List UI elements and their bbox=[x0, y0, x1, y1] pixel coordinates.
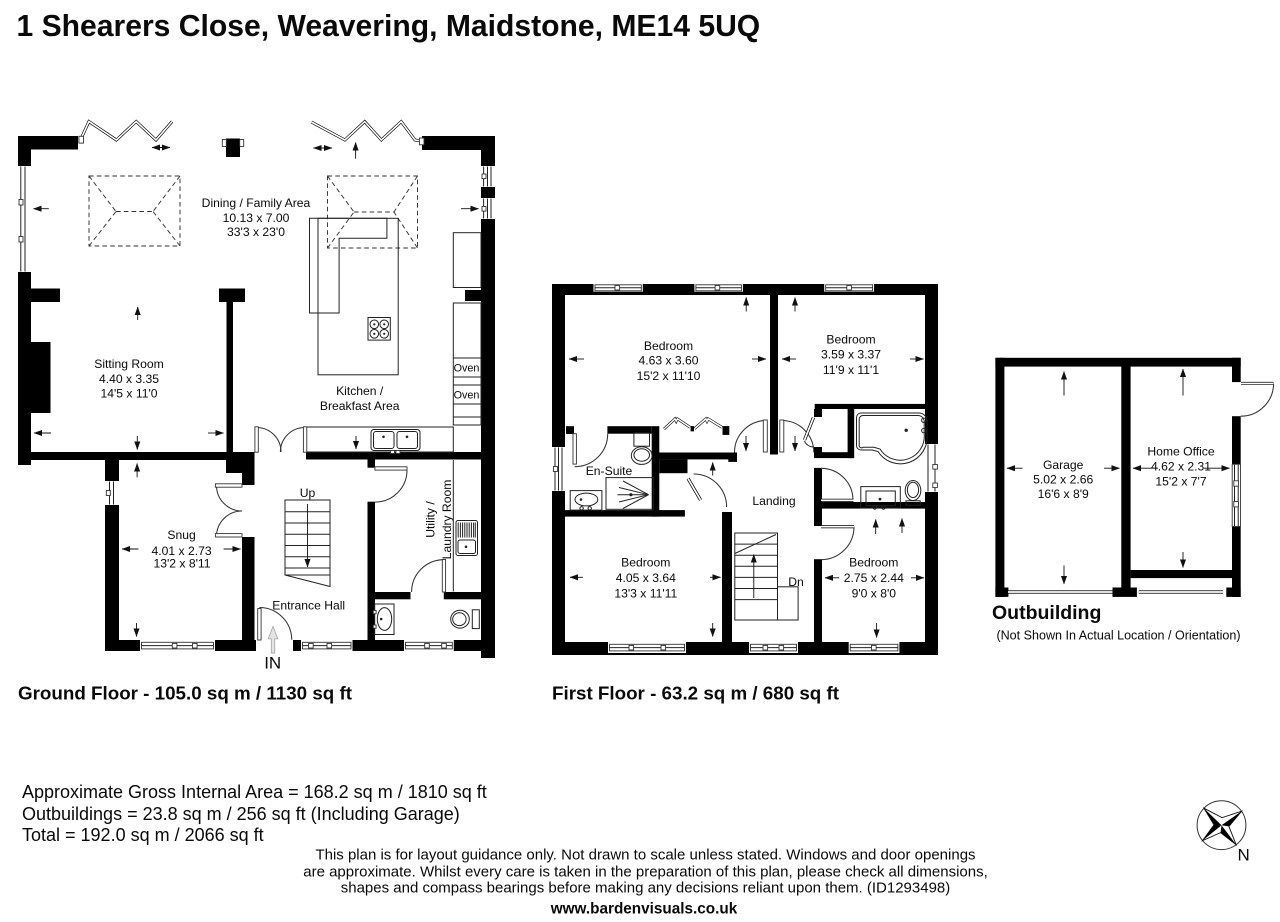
svg-text:www.bardenvisuals.co.uk: www.bardenvisuals.co.uk bbox=[550, 901, 738, 918]
svg-text:1 Shearers Close, Weavering, M: 1 Shearers Close, Weavering, Maidstone, … bbox=[17, 10, 761, 43]
svg-text:Approximate Gross Internal Are: Approximate Gross Internal Area = 168.2 … bbox=[22, 782, 487, 802]
svg-text:14'5 x 11'0: 14'5 x 11'0 bbox=[100, 387, 157, 401]
svg-text:4.63 x 3.60: 4.63 x 3.60 bbox=[638, 354, 698, 368]
svg-text:Ground Floor - 105.0 sq m / 11: Ground Floor - 105.0 sq m / 1130 sq ft bbox=[18, 683, 353, 704]
svg-text:Total = 192.0 sq m / 2066 sq f: Total = 192.0 sq m / 2066 sq ft bbox=[22, 825, 264, 845]
svg-text:4.62 x 2.31: 4.62 x 2.31 bbox=[1151, 460, 1211, 474]
svg-text:Kitchen /: Kitchen / bbox=[336, 384, 384, 398]
svg-text:Bedroom: Bedroom bbox=[621, 556, 670, 570]
svg-text:5.02 x 2.66: 5.02 x 2.66 bbox=[1033, 473, 1093, 487]
svg-text:(Not Shown In Actual Location: (Not Shown In Actual Location / Orientat… bbox=[996, 629, 1240, 643]
svg-text:Entrance Hall: Entrance Hall bbox=[272, 598, 345, 612]
svg-text:13'3 x 11'11: 13'3 x 11'11 bbox=[614, 586, 677, 600]
svg-text:2.75 x 2.44: 2.75 x 2.44 bbox=[844, 571, 904, 585]
svg-text:Oven: Oven bbox=[454, 363, 480, 375]
svg-text:shapes and compass bearings be: shapes and compass bearings before makin… bbox=[341, 880, 951, 897]
svg-text:16'6 x 8'9: 16'6 x 8'9 bbox=[1038, 487, 1089, 501]
svg-text:Bedroom: Bedroom bbox=[644, 339, 693, 353]
svg-text:Utility /: Utility / bbox=[424, 501, 438, 538]
svg-text:15'2 x 7'7: 15'2 x 7'7 bbox=[1155, 475, 1206, 489]
svg-text:Landing: Landing bbox=[752, 494, 795, 508]
svg-text:This plan is for layout guidan: This plan is for layout guidance only. N… bbox=[315, 847, 975, 864]
svg-text:Laundry Room: Laundry Room bbox=[440, 480, 454, 560]
svg-text:4.40 x 3.35: 4.40 x 3.35 bbox=[99, 372, 159, 386]
svg-text:Outbuilding: Outbuilding bbox=[992, 602, 1101, 624]
svg-text:3.59 x 3.37: 3.59 x 3.37 bbox=[821, 348, 881, 362]
svg-text:Dn: Dn bbox=[788, 575, 804, 589]
svg-text:IN: IN bbox=[264, 654, 281, 673]
svg-text:Oven: Oven bbox=[454, 390, 480, 402]
svg-text:Dining / Family Area: Dining / Family Area bbox=[202, 196, 311, 210]
svg-text:15'2 x 11'10: 15'2 x 11'10 bbox=[637, 369, 701, 383]
svg-text:10.13 x 7.00: 10.13 x 7.00 bbox=[223, 211, 290, 225]
svg-text:Outbuildings = 23.8 sq m / 256: Outbuildings = 23.8 sq m / 256 sq ft (In… bbox=[22, 804, 460, 824]
svg-text:4.05 x 3.64: 4.05 x 3.64 bbox=[616, 571, 676, 585]
svg-text:Bedroom: Bedroom bbox=[849, 556, 898, 570]
svg-text:First Floor - 63.2 sq m / 680: First Floor - 63.2 sq m / 680 sq ft bbox=[552, 683, 840, 704]
svg-text:Sitting Room: Sitting Room bbox=[94, 357, 164, 371]
svg-text:Home Office: Home Office bbox=[1147, 445, 1214, 459]
svg-text:Up: Up bbox=[300, 486, 316, 500]
svg-text:Bedroom: Bedroom bbox=[826, 333, 875, 347]
svg-text:11'9 x 11'1: 11'9 x 11'1 bbox=[823, 363, 879, 377]
svg-text:13'2 x 8'11: 13'2 x 8'11 bbox=[153, 557, 210, 571]
svg-text:33'3 x 23'0: 33'3 x 23'0 bbox=[227, 225, 285, 239]
svg-text:9'0 x 8'0: 9'0 x 8'0 bbox=[852, 586, 897, 600]
svg-text:are approximate. Whilst every: are approximate. Whilst every care is ta… bbox=[303, 863, 988, 880]
svg-text:Garage: Garage bbox=[1043, 458, 1084, 472]
svg-text:En-Suite: En-Suite bbox=[586, 464, 633, 478]
svg-text:Snug: Snug bbox=[167, 528, 195, 542]
svg-text:N: N bbox=[1238, 846, 1250, 865]
svg-text:Breakfast Area: Breakfast Area bbox=[320, 399, 400, 413]
